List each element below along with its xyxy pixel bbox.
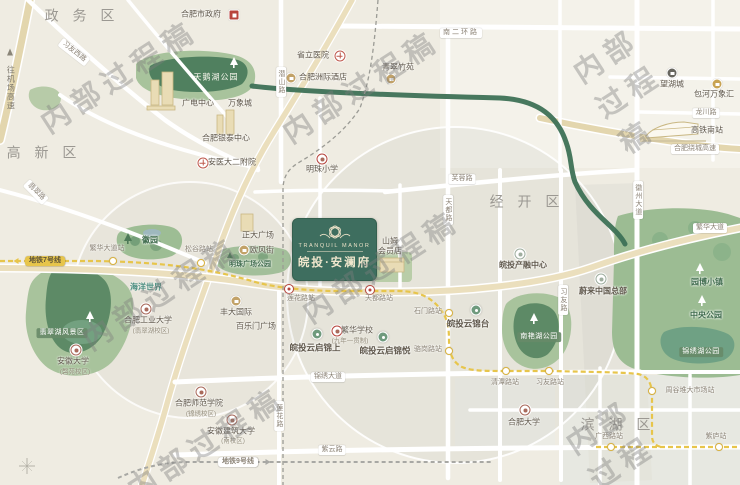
station-label-xiyoulu: 习友路站 (536, 379, 564, 387)
station-label-lianhualu: 莲花路站 (287, 295, 315, 303)
university-icon-hfut (141, 304, 152, 315)
poi-label-eryuan: 安医大二附院 (208, 159, 256, 168)
line9-arrow-icon (266, 459, 271, 465)
station-marker-luogang (445, 347, 453, 355)
school-icon-mingzhuxx (317, 154, 328, 165)
poi-label-nio: 蔚来中国总部 (579, 288, 627, 297)
university-icon-shifan (196, 387, 207, 398)
university-icon-jianda (227, 415, 238, 426)
poi-label-oufengjie: 欧风街 (250, 247, 274, 256)
project-icon-jinyue (378, 332, 389, 343)
district-label-jingkai: 经 开 区 (490, 194, 565, 209)
station-marker-guangxi (607, 443, 615, 451)
station-label-zhougudui: 周谷堆大市场站 (666, 387, 715, 395)
project-icon-yunjintai (471, 305, 482, 316)
poi-label-heda: 合肥大学 (508, 419, 540, 428)
poi-label-chanrong: 皖投产融中心 (499, 262, 547, 271)
poi-label-mingzhuxx: 明珠小学 (306, 166, 338, 175)
station-marker-zilu (715, 443, 723, 451)
station-label-shimenlu: 石门路站 (414, 308, 442, 316)
station-label-luogang: 骆岗路站 (414, 346, 442, 354)
poi-label-yintai: 合肥银泰中心 (202, 135, 250, 144)
poi-label-anda: 安徽大学 (57, 358, 89, 367)
road-label-ziyun: 紫云路 (319, 445, 346, 455)
poi-label-gov: 合肥市政府 (181, 11, 221, 20)
poi-label-wanghucheng: 望湖城 (660, 81, 684, 90)
station-marker-fanhuadadao (109, 257, 117, 265)
poi-label-jianda: 安徽建筑大学 (207, 428, 255, 437)
poi-label-sam-line2: 会员店 (378, 248, 402, 257)
station-label-zilu: 紫庐站 (706, 433, 727, 441)
direction-arrow-icon (7, 49, 13, 56)
residence-icon-zhuyuan (386, 74, 397, 85)
poi-label-shengli: 省立医院 (297, 52, 329, 61)
poi-label-wanxianghui: 包河万象汇 (694, 91, 734, 100)
road-label-raocheng: 合肥绕城高速 (671, 144, 719, 154)
poi-label-fengda: 丰大国际 (220, 309, 252, 318)
station-marker-songgu (197, 259, 205, 267)
road-label-jinxiu: 锦绣大道 (311, 372, 345, 382)
road-label-longchuan: 龙川路 (693, 108, 720, 118)
poi-label-bailemen: 百乐门广场 (236, 323, 276, 332)
poi-label-hfut: 合肥工业大学 (124, 317, 172, 326)
station-marker-xiyoulu (545, 367, 553, 375)
road-label-xiyou-south: 习友路 (558, 285, 568, 315)
line7-arrow-icon (14, 258, 19, 264)
location-map: 政 务 区 高 新 区 经 开 区 滨 湖 区 TRANQUIL MANOR 皖… (0, 0, 740, 485)
project-name-en: TRANQUIL MANOR (298, 243, 370, 249)
poi-sublabel-fanhuaschool: (九年一贯制) (332, 337, 369, 344)
station-marker-lianhualu (284, 284, 294, 294)
poi-sublabel-anda: (磬苑校区) (60, 368, 90, 375)
university-icon-anda (71, 345, 82, 356)
project-card: TRANQUIL MANOR 皖投·安澜府 (292, 218, 377, 281)
park-label-huiyuan: 徽园 (142, 237, 158, 246)
mall-icon-fengda (231, 296, 242, 307)
station-label-guangxi: 广西路站 (595, 433, 623, 441)
poi-sublabel-shifan: (锦绣校区) (186, 410, 216, 417)
government-icon (229, 10, 240, 21)
street-icon-oufengjie (239, 245, 250, 256)
card-divider (307, 251, 363, 252)
station-marker-zhougudui (648, 387, 656, 395)
project-crest-icon (318, 222, 352, 242)
district-label-gaoxin: 高 新 区 (7, 145, 82, 160)
poi-label-zhuyuan: 青翠竹苑 (382, 64, 414, 73)
station-label-qingtan: 清潭路站 (491, 379, 519, 387)
mall-icon-wanghucheng (667, 68, 678, 79)
station-marker-qingtan (502, 367, 510, 375)
metro-line9-label: 地铁9号线 (218, 457, 258, 467)
road-label-huizhou: 徽州大道 (633, 181, 643, 219)
poi-label-jinyue: 皖投云启锦悦 (359, 346, 410, 355)
poi-label-yunjintai: 皖投云锦台 (447, 319, 490, 328)
park-label-jinxiuhu: 锦绣湖公园 (679, 347, 723, 357)
road-label-fanhua: 繁华大道 (693, 223, 727, 233)
road-label-lianhua: 莲花路 (274, 401, 284, 431)
mall-icon-wanxianghui (712, 79, 723, 90)
district-label-binhu: 滨 湖 区 (581, 417, 656, 432)
poi-label-intercontinental: 合肥洲际酒店 (299, 74, 347, 83)
office-icon-chanrong (515, 249, 526, 260)
road-label-qianshan: 潜山路 (276, 67, 286, 97)
park-label-yuanbo: 园博小镇 (691, 279, 723, 288)
poi-sublabel-hfut: (翡翠湖校区) (133, 327, 170, 334)
park-label-mingzhu: 明珠广场公园 (229, 261, 271, 269)
project-name-cn: 皖投·安澜府 (298, 254, 371, 270)
poi-label-sam-line1: 山姆 (382, 238, 398, 247)
station-label-songgu: 松谷路站 (185, 246, 213, 254)
hospital-icon-eryuan (198, 158, 209, 169)
university-icon-heda (520, 405, 531, 416)
road-label-tiandu: 天都路 (443, 195, 453, 225)
park-label-feicuihu: 翡翠湖风景区 (37, 328, 88, 338)
poi-label-shifan: 合肥师范学院 (175, 400, 223, 409)
poi-label-jinshang: 皖投云启锦上 (289, 343, 340, 352)
station-marker-shimenlu (445, 309, 453, 317)
park-label-zhongyang: 中央公园 (690, 312, 722, 321)
district-label-zhengwu: 政 务 区 (45, 8, 120, 23)
poi-label-gaotie: 高铁南站 (691, 127, 723, 136)
road-label-nanerhuan: 南二环路 (440, 28, 482, 38)
poi-sublabel-jianda: (南校区) (221, 437, 245, 444)
poi-label-haiyang: 海洋世界 (130, 284, 162, 293)
road-label-airport: 往机场高速 (5, 63, 16, 114)
station-label-fanhuadadao: 繁华大道站 (90, 245, 125, 253)
project-icon-jinshang (312, 329, 323, 340)
park-label-nanyanhu: 南艳湖公园 (517, 332, 561, 342)
poi-label-zhengda: 正大广场 (242, 232, 274, 241)
station-marker-tiandulu (365, 285, 375, 295)
road-label-furong: 芙蓉路 (449, 174, 476, 184)
metro-line7-label: 地铁7号线 (25, 256, 65, 266)
hospital-icon-shengli (335, 51, 346, 62)
poi-label-gdzx: 广电中心 (182, 100, 214, 109)
poi-label-wanxiangcheng: 万象城 (228, 100, 252, 109)
station-label-tiandulu: 天都路站 (365, 295, 393, 303)
park-label-tianehu: 天鹅湖公园 (194, 74, 239, 83)
poi-label-fanhuaschool: 繁华学校 (341, 327, 373, 336)
hotel-icon-intercontinental (286, 73, 297, 84)
office-icon-nio (596, 274, 607, 285)
